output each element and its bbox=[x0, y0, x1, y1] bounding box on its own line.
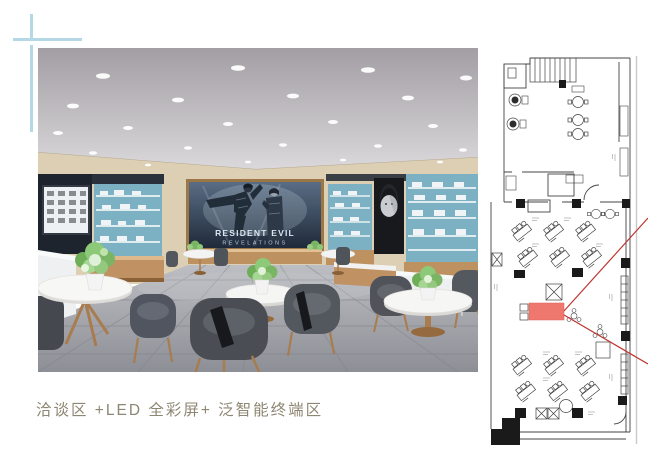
caption: 洽谈区 +LED 全彩屏+ 泛智能终端区 bbox=[36, 398, 323, 420]
right-shelf-case-2 bbox=[404, 174, 478, 279]
plan-fixtures bbox=[492, 253, 628, 419]
cross-horizontal bbox=[13, 38, 82, 41]
left-shelf-case bbox=[94, 184, 162, 256]
plan-stairs bbox=[530, 58, 576, 82]
led-screen: RESIDENT EVIL REVELATIONS bbox=[186, 179, 324, 251]
bg-chair bbox=[166, 251, 178, 267]
right-poster bbox=[374, 178, 404, 254]
screen-title-line1: RESIDENT EVIL bbox=[215, 228, 295, 238]
bg-chair bbox=[336, 247, 350, 265]
floor-plan bbox=[488, 54, 648, 446]
showroom-rendering: RESIDENT EVIL REVELATIONS bbox=[38, 48, 478, 372]
sightline-lower bbox=[564, 315, 648, 364]
showroom-rendering-canvas: RESIDENT EVIL REVELATIONS bbox=[38, 48, 478, 372]
chair bbox=[38, 296, 64, 350]
screen-title-line2: REVELATIONS bbox=[222, 241, 287, 247]
floor-plan-canvas bbox=[488, 54, 648, 446]
sightline-upper bbox=[564, 218, 648, 311]
cross-vertical-top bbox=[30, 14, 33, 38]
bg-chair bbox=[214, 248, 228, 266]
ceiling bbox=[38, 48, 478, 169]
left-tv-screen bbox=[43, 186, 89, 234]
cross-vertical-bottom bbox=[30, 45, 33, 132]
